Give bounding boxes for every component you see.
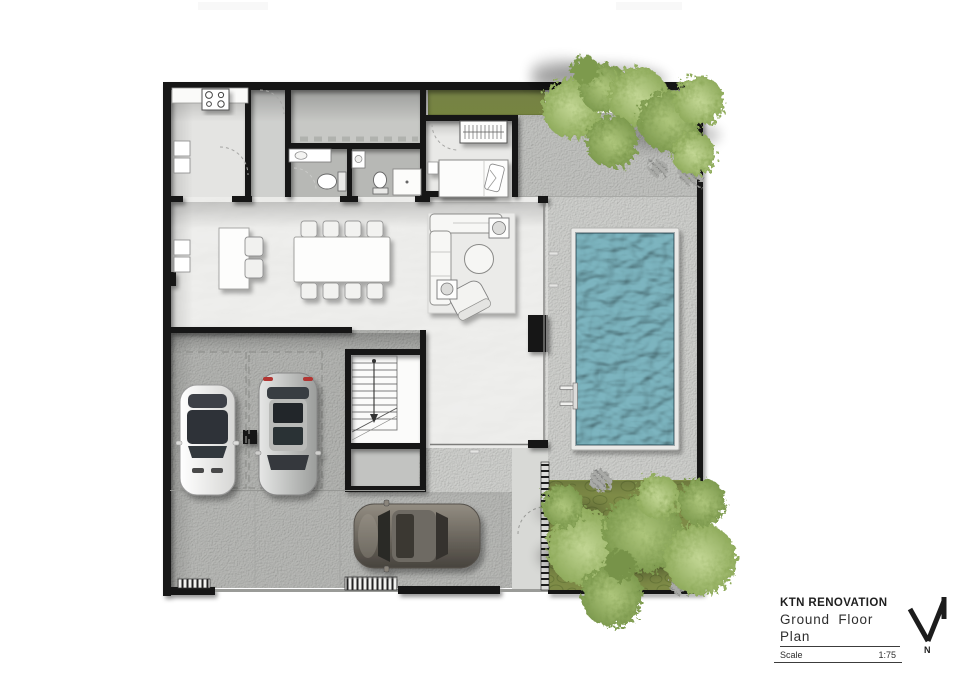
taillight (303, 377, 313, 381)
plant-icon (437, 280, 457, 299)
dining-chair (301, 283, 317, 299)
dining-chair (323, 283, 339, 299)
toilet-icon (373, 172, 388, 194)
tree (672, 132, 716, 176)
cabinet (174, 240, 190, 255)
tree (678, 478, 726, 526)
family-room-floor (425, 330, 545, 448)
car-rear-glass (188, 394, 227, 408)
tree (586, 116, 638, 168)
north-label: N (924, 645, 931, 655)
nightstand (428, 162, 438, 174)
scale-value: 1:75 (878, 650, 896, 660)
tree (664, 523, 736, 595)
car-silver-sedan (255, 373, 321, 495)
gate-small (178, 579, 210, 588)
cabinet (174, 141, 190, 156)
project-title: KTN RENOVATION (780, 597, 900, 610)
gate (345, 577, 397, 590)
car-white-sports (176, 385, 239, 495)
stair-floor (351, 352, 421, 445)
cabinet (174, 257, 190, 272)
garden-fence (541, 462, 549, 590)
stove-icon (202, 89, 229, 110)
sink-icon (295, 152, 307, 160)
stool (245, 237, 263, 256)
dining-table (294, 237, 390, 282)
pool-water (576, 233, 674, 445)
toilet-icon (318, 172, 347, 191)
car-windshield (378, 510, 390, 562)
cabinet (174, 158, 190, 173)
plant-icon (489, 218, 509, 238)
garage-column (243, 430, 257, 444)
dining-chair (345, 221, 361, 237)
car-bronze-sedan (354, 500, 480, 572)
tree (636, 475, 680, 519)
sunroof (273, 427, 303, 445)
title-rule (774, 662, 902, 663)
wall-west (163, 82, 171, 596)
scale-label: Scale (780, 650, 803, 660)
dimension-bar (198, 2, 268, 10)
column (528, 315, 548, 352)
car-roof-glass (187, 410, 228, 444)
dimension-bar (616, 2, 682, 10)
dining-chair (367, 221, 383, 237)
title-rule (780, 646, 900, 647)
wall-south-2 (398, 586, 500, 594)
dining-chair (345, 283, 361, 299)
store-room-floor (351, 449, 419, 486)
sunroof (396, 514, 414, 558)
coffee-table (465, 245, 494, 274)
north-arrow-icon: N (902, 595, 950, 655)
dining-chair (301, 221, 317, 237)
title-block: KTN RENOVATION Ground Floor Plan Scale 1… (780, 597, 955, 663)
tree (674, 76, 724, 126)
taillight (263, 377, 273, 381)
stool (245, 259, 263, 278)
trees-bottom-cluster (542, 469, 736, 627)
car-rear-glass (436, 512, 448, 560)
swimming-pool (560, 228, 679, 450)
car-windshield (188, 446, 227, 458)
floor-plan-drawing (0, 0, 960, 678)
floor-plan-sheet: KTN RENOVATION Ground Floor Plan Scale 1… (0, 0, 960, 678)
drawing-title: Ground Floor Plan (780, 611, 900, 645)
dining-chair (367, 283, 383, 299)
car-windshield (267, 455, 309, 470)
car-rear-glass (267, 387, 309, 399)
sunroof (273, 403, 303, 423)
dining-chair (323, 221, 339, 237)
tree (542, 485, 584, 527)
living-set (428, 213, 515, 322)
